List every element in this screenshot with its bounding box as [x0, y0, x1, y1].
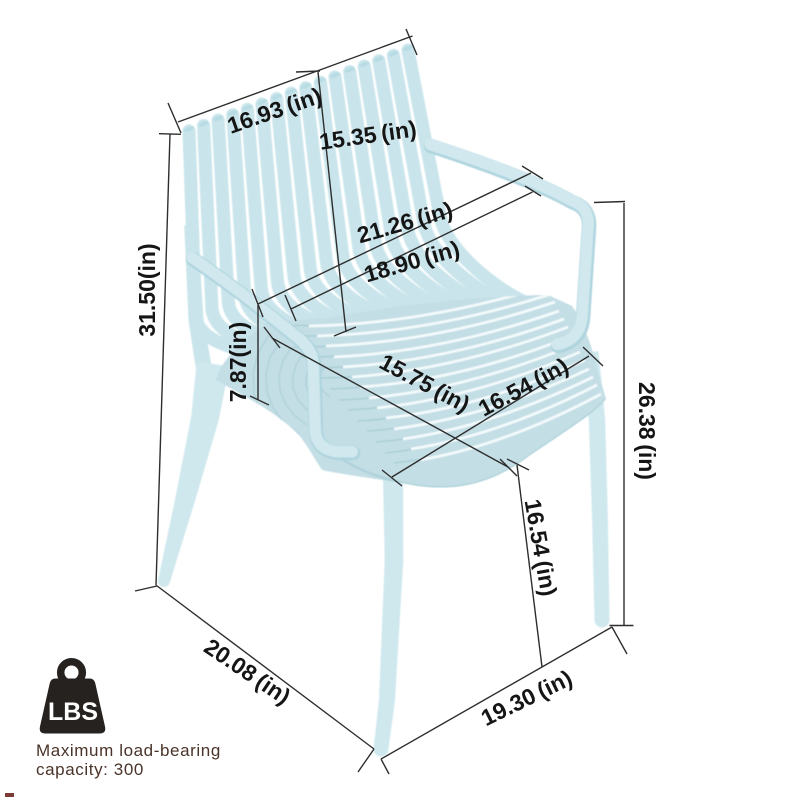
svg-text:LBS: LBS — [48, 698, 98, 726]
svg-text:31.50(in): 31.50(in) — [134, 243, 160, 336]
svg-text:Maximum load-bearing: Maximum load-bearing — [36, 741, 221, 760]
svg-text:26.38 (in): 26.38 (in) — [634, 382, 660, 480]
svg-text:7.87(in): 7.87(in) — [225, 322, 251, 403]
svg-text:capacity: 300: capacity: 300 — [36, 760, 144, 779]
